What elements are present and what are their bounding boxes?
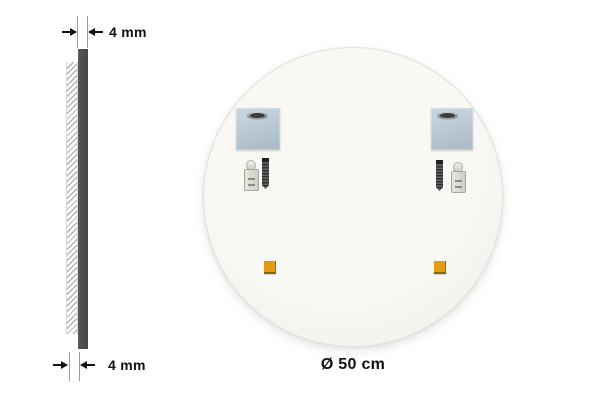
diameter-label: Ø 50 cm [203, 356, 503, 374]
slot-hole [440, 113, 455, 118]
screw-icon [436, 160, 443, 191]
keyhole-slot-icon [247, 111, 268, 120]
screw-head [262, 158, 269, 161]
side-view: 4 mm 4 mm [0, 0, 160, 400]
wall-plug-body [451, 171, 466, 193]
dimension-arrow-shaft [94, 31, 103, 33]
mounting-bracket-icon [431, 108, 473, 150]
mounting-bracket-icon [236, 108, 280, 150]
thickness-label-top: 4 mm [109, 24, 147, 40]
dimension-arrow-shaft [86, 364, 95, 366]
slot-hole [250, 113, 265, 118]
extension-line [77, 16, 78, 48]
hardware-set-left [244, 160, 274, 193]
keyhole-slot-icon [437, 111, 458, 120]
arrow-right-icon [70, 28, 77, 36]
extension-line [69, 352, 70, 381]
mirror-back-view [203, 47, 503, 347]
plug-slot [248, 178, 255, 180]
plug-slot [455, 186, 462, 188]
plug-slot [248, 184, 255, 186]
product-dimension-image: 4 mm 4 mm [0, 0, 600, 400]
top-dimension: 4 mm [0, 0, 160, 50]
mirror-side-hatch [66, 62, 78, 334]
hardware-set-right [436, 160, 466, 193]
arrow-right-icon [61, 361, 68, 369]
adhesive-pad-icon [264, 261, 276, 274]
mirror-side-glass [78, 49, 88, 349]
screw-head [436, 160, 443, 163]
wall-plug-body [244, 169, 259, 191]
adhesive-pad-icon [434, 261, 446, 274]
plug-slot [455, 180, 462, 182]
screw-icon [262, 158, 269, 189]
bottom-dimension: 4 mm [0, 350, 160, 400]
thickness-label-bottom: 4 mm [108, 357, 146, 373]
